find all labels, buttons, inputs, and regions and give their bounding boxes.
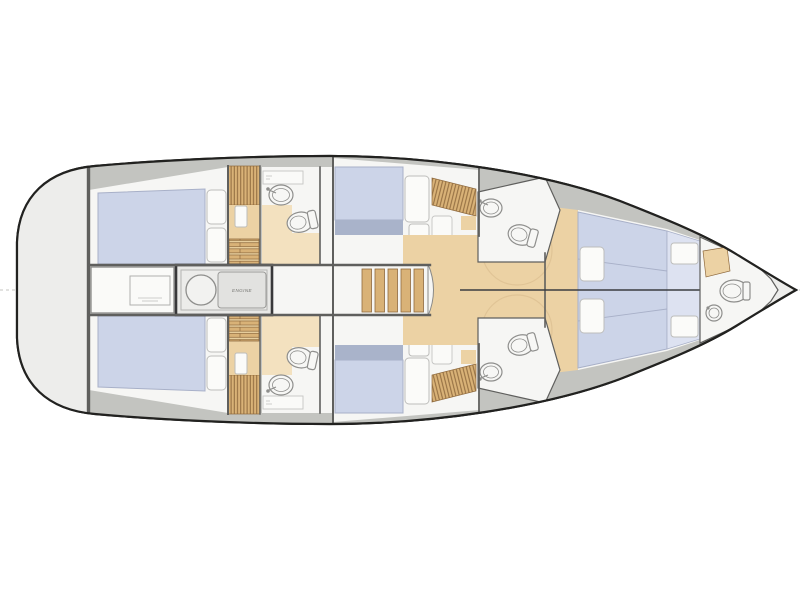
aft-cabin-berth	[98, 189, 205, 264]
sink-icon	[706, 305, 722, 321]
pillow	[580, 247, 604, 281]
wardrobe-strip	[320, 167, 333, 265]
toilet-icon	[720, 280, 750, 302]
companionway-ladder	[362, 269, 424, 312]
pillow	[207, 190, 226, 224]
pillow	[207, 228, 226, 262]
round-tank-icon	[186, 275, 216, 305]
berth-foot-band	[335, 220, 403, 235]
yacht-floor-plan: ENGINE	[0, 0, 800, 600]
aft-head-counter	[263, 171, 303, 184]
mid-cabin-sole	[403, 235, 480, 265]
locker-door	[235, 206, 247, 227]
forward-bench	[671, 243, 698, 264]
pillow	[405, 176, 429, 222]
storage-locker	[91, 267, 174, 313]
aft-cabin-steps	[229, 239, 259, 264]
wood-cabinet	[461, 216, 476, 230]
engine-label: ENGINE	[232, 288, 253, 293]
mid-head	[478, 177, 560, 262]
hanging-locker	[228, 166, 260, 205]
engine-room: ENGINE	[91, 265, 272, 315]
mid-cabin-berth	[335, 167, 403, 220]
